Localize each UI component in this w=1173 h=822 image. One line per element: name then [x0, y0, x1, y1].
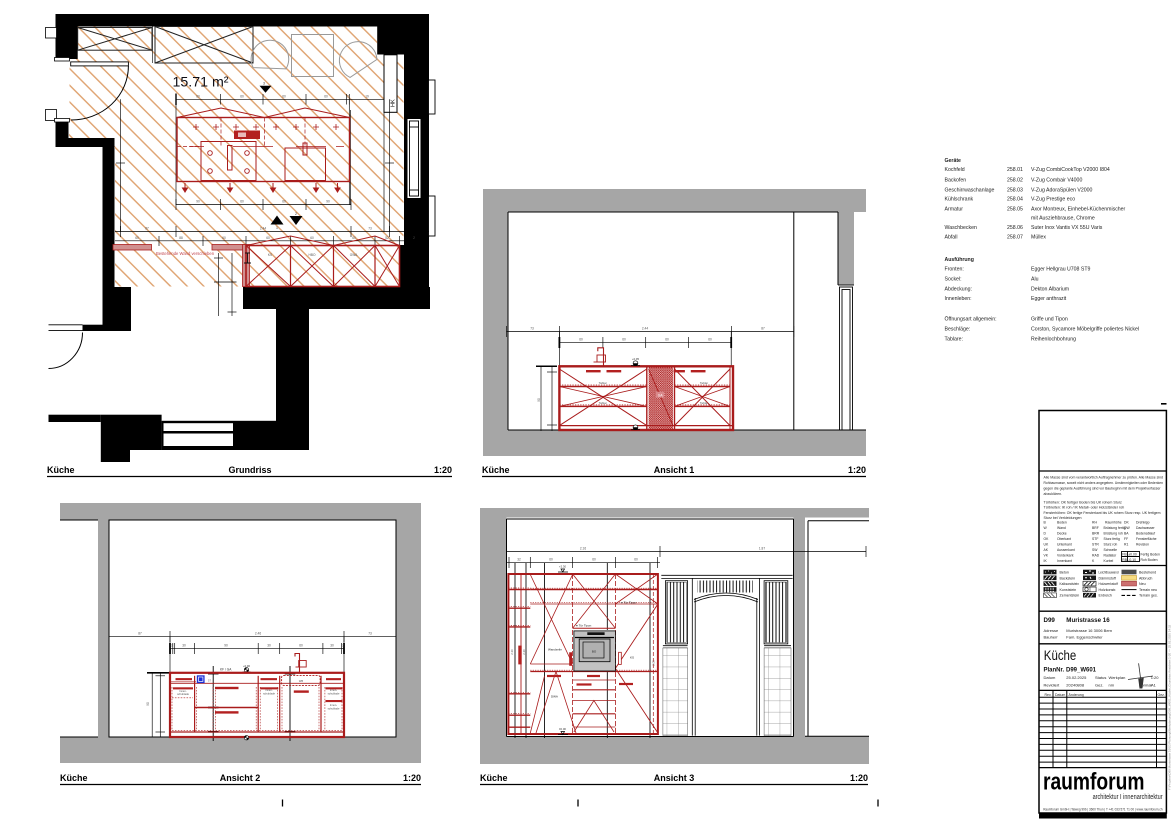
svg-text:1:20: 1:20 — [434, 465, 452, 475]
svg-text:2: 2 — [413, 236, 415, 240]
svg-text:OK: OK — [1044, 537, 1050, 541]
svg-text:Innenleben:: Innenleben: — [945, 296, 972, 302]
svg-text:1.87: 1.87 — [759, 547, 765, 551]
svg-text:RH: RH — [1092, 521, 1097, 525]
svg-text:60: 60 — [592, 558, 596, 562]
svg-text:Alle Masse sind vom verantwort: Alle Masse sind vom verantwortlich Auftr… — [1044, 476, 1164, 480]
svg-text:60: 60 — [282, 95, 286, 99]
svg-text:Muristrasse 16: Muristrasse 16 — [1066, 617, 1110, 624]
svg-text:Gez.: Gez. — [1158, 693, 1165, 697]
svg-text:±0.00: ±0.00 — [1128, 553, 1137, 557]
svg-text:Küche: Küche — [47, 465, 75, 475]
svg-text:Innenkant: Innenkant — [1057, 559, 1072, 563]
svg-text:D99_W601: D99_W601 — [1066, 668, 1097, 674]
svg-text:Fam. Eggenschwiler: Fam. Eggenschwiler — [1066, 635, 1103, 640]
svg-text:Grundriss: Grundriss — [228, 465, 271, 475]
svg-text:V-Zug CombiCookTop V2000 I804: V-Zug CombiCookTop V2000 I804 — [1031, 167, 1110, 173]
svg-text:Ansicht 3: Ansicht 3 — [654, 773, 695, 783]
svg-text:D99: D99 — [1044, 617, 1056, 624]
svg-text:1:20: 1:20 — [403, 773, 421, 783]
svg-text:Tablar: Tablar — [599, 381, 607, 385]
svg-text:Backofen: Backofen — [945, 177, 967, 183]
svg-text:2.16: 2.16 — [580, 547, 586, 551]
svg-text:60: 60 — [324, 95, 328, 99]
svg-text:258.07: 258.07 — [1007, 234, 1023, 240]
svg-text:Küche: Küche — [482, 465, 510, 475]
svg-text:60: 60 — [196, 95, 200, 99]
svg-text:87: 87 — [138, 632, 142, 636]
svg-text:Vorderkant: Vorderkant — [1057, 554, 1073, 558]
svg-text:BA: BA — [1124, 532, 1129, 536]
svg-text:Revidiert: Revidiert — [1044, 682, 1061, 687]
svg-text:Griffe und Tipon: Griffe und Tipon — [1031, 316, 1068, 322]
svg-text:Gez.: Gez. — [1095, 682, 1103, 687]
svg-text:Küche: Küche — [1044, 648, 1077, 664]
svg-text:2: 2 — [171, 643, 173, 647]
svg-text:● Tür Tipon: ● Tür Tipon — [621, 601, 637, 605]
svg-text:GA: GA — [658, 393, 664, 397]
svg-text:Tablar: Tablar — [700, 401, 708, 405]
svg-text:+2.30: +2.30 — [559, 565, 567, 569]
svg-text:Müllex: Müllex — [1031, 234, 1046, 240]
svg-text:Alu: Alu — [1031, 276, 1039, 282]
svg-text:DWA: DWA — [551, 695, 558, 699]
svg-text:88: 88 — [179, 236, 183, 240]
svg-text:V-Zug Combair V4000: V-Zug Combair V4000 — [1031, 177, 1082, 183]
svg-text:Küche: Küche — [60, 773, 88, 783]
svg-text:Tablar: Tablar — [599, 401, 607, 405]
svg-text:schublade: schublade — [328, 706, 340, 710]
svg-text:Rohbaumasse, soweit nicht ande: Rohbaumasse, soweit nicht anders angegeb… — [1044, 481, 1164, 485]
svg-text:Kühlschrank: Kühlschrank — [945, 197, 974, 203]
svg-text:Egger anthrazit: Egger anthrazit — [1031, 296, 1067, 302]
svg-text:HBO: HBO — [309, 253, 316, 257]
svg-text:FF: FF — [1124, 537, 1128, 541]
svg-text:30: 30 — [330, 643, 334, 647]
svg-text:Sockel:: Sockel: — [945, 276, 962, 282]
svg-text:1: 1 — [276, 226, 278, 230]
svg-text:1:20: 1:20 — [848, 465, 866, 475]
svg-text:30: 30 — [267, 643, 271, 647]
svg-text:V-Zug AdoraSpülen V2000: V-Zug AdoraSpülen V2000 — [1031, 187, 1093, 193]
svg-text:Datum: Datum — [1044, 675, 1056, 680]
svg-text:schublade: schublade — [177, 692, 189, 696]
svg-text:Sturz bei Verkleidungen: Sturz bei Verkleidungen — [1044, 516, 1082, 520]
svg-text:2.44: 2.44 — [260, 227, 266, 231]
svg-text:Armatur: Armatur — [945, 207, 964, 213]
svg-text:258.04: 258.04 — [1007, 197, 1023, 203]
svg-text:Egger Hellgrau U708 ST9: Egger Hellgrau U708 ST9 — [1031, 266, 1091, 272]
svg-text:Öffnungsart allgemein:: Öffnungsart allgemein: — [945, 315, 997, 322]
svg-text:1:20: 1:20 — [850, 773, 868, 783]
svg-text:Sturz fertig: Sturz fertig — [1104, 537, 1121, 541]
svg-text:30: 30 — [182, 643, 186, 647]
svg-text:F:\Projekte\D99 Muristrasse 16: F:\Projekte\D99 Muristrasse 16\03 Planun… — [1168, 624, 1172, 790]
svg-text:Fertig Boden: Fertig Boden — [1141, 553, 1161, 557]
svg-text:3: 3 — [263, 82, 265, 86]
svg-text:73: 73 — [368, 632, 372, 636]
svg-text:Bestehend: Bestehend — [1139, 571, 1156, 575]
svg-text:RB: RB — [1122, 558, 1127, 562]
svg-text:60: 60 — [135, 236, 139, 240]
svg-text:DK: DK — [1124, 521, 1129, 525]
svg-text:Geräte: Geräte — [945, 158, 962, 164]
svg-text:2.46: 2.46 — [255, 632, 261, 636]
svg-text:Unterkant: Unterkant — [1057, 543, 1072, 547]
svg-text:258.03: 258.03 — [1007, 187, 1023, 193]
svg-text:Status: Status — [1095, 675, 1106, 680]
svg-text:Kalksandstein: Kalksandstein — [1060, 582, 1080, 586]
svg-text:52: 52 — [385, 236, 389, 240]
svg-text:Muristrasse 16 3006 Bern: Muristrasse 16 3006 Bern — [1066, 628, 1112, 633]
svg-text:90: 90 — [196, 200, 200, 204]
svg-text:Drehkipp: Drehkipp — [1136, 521, 1150, 525]
svg-text:Revision: Revision — [1136, 543, 1149, 547]
svg-text:60: 60 — [665, 337, 669, 341]
svg-text:● Tür Tipon: ● Tür Tipon — [576, 624, 592, 628]
svg-text:Waschbecken: Waschbecken — [945, 225, 978, 231]
svg-text:Raumhöhe: Raumhöhe — [1105, 521, 1122, 525]
svg-text:Sturz roh: Sturz roh — [1104, 543, 1118, 547]
svg-text:60: 60 — [634, 558, 638, 562]
svg-text:Geschirrwaschanlage: Geschirrwaschanlage — [945, 187, 995, 193]
svg-text:AK: AK — [1044, 548, 1049, 552]
svg-text:258.01: 258.01 — [1007, 167, 1023, 173]
svg-text:Ausführung: Ausführung — [945, 257, 974, 263]
svg-text:Beschläge:: Beschläge: — [945, 326, 971, 332]
svg-text:Axor Montreux, Einhebel-Küchen: Axor Montreux, Einhebel-Küchenmischer — [1031, 207, 1126, 213]
svg-text:Zementstein: Zementstein — [1060, 594, 1080, 598]
svg-text:60: 60 — [622, 337, 626, 341]
svg-text:90: 90 — [326, 200, 330, 204]
svg-text:BRR: BRR — [1092, 532, 1100, 536]
svg-text:Decke: Decke — [1057, 532, 1067, 536]
svg-text:Türhöhen: OK fertiger Boden bi: Türhöhen: OK fertiger Boden bis UK rohem… — [1044, 501, 1123, 505]
svg-text:Ansicht 2: Ansicht 2 — [220, 773, 261, 783]
svg-text:Fensterhöhen: OK fertige Fenst: Fensterhöhen: OK fertige Fensterkant bis… — [1044, 511, 1161, 515]
svg-text:STF: STF — [1092, 537, 1098, 541]
svg-text:Bauherr: Bauherr — [1044, 635, 1059, 640]
svg-text:Radiator: Radiator — [1104, 554, 1118, 558]
svg-text:Dämmstoff: Dämmstoff — [1099, 576, 1116, 580]
svg-text:2: 2 — [342, 643, 344, 647]
svg-text:SW: SW — [1092, 548, 1098, 552]
svg-text:WB: WB — [299, 679, 303, 683]
svg-text:BRF: BRF — [1092, 526, 1099, 530]
svg-text:60: 60 — [579, 337, 583, 341]
svg-text:2: 2 — [347, 95, 349, 99]
svg-text:Wand: Wand — [1057, 526, 1066, 530]
svg-text:Kochfeld: Kochfeld — [945, 167, 965, 173]
svg-text:Brüstung fertig: Brüstung fertig — [1104, 526, 1126, 530]
svg-text:Roh Boden: Roh Boden — [1141, 558, 1158, 562]
svg-text:Ansicht 1: Ansicht 1 — [654, 465, 695, 475]
svg-text:60: 60 — [240, 95, 244, 99]
svg-text:32: 32 — [517, 558, 521, 562]
svg-text:mit Ausziehbrause, Chrome: mit Ausziehbrause, Chrome — [1031, 216, 1095, 222]
svg-text:20240808: 20240808 — [1066, 682, 1085, 687]
svg-text:Abdeckung:: Abdeckung: — [945, 286, 972, 292]
svg-text:Bodenablauf: Bodenablauf — [1136, 532, 1155, 536]
svg-text:R1: R1 — [1124, 543, 1128, 547]
svg-text:2.44: 2.44 — [642, 327, 648, 331]
svg-text:Fronten:: Fronten: — [945, 266, 964, 272]
svg-text:60: 60 — [240, 200, 244, 204]
svg-text:87: 87 — [145, 227, 149, 231]
svg-text:60: 60 — [222, 236, 226, 240]
svg-text:Boden: Boden — [1057, 521, 1067, 525]
svg-text:90: 90 — [224, 643, 228, 647]
svg-text:25.02.2025: 25.02.2025 — [1066, 675, 1087, 680]
svg-text:Terrain neu: Terrain neu — [1139, 588, 1157, 592]
svg-text:HK: HK — [391, 99, 397, 107]
svg-text:Suter Inox Vantis VX 55U Varis: Suter Inox Vantis VX 55U Varis — [1031, 225, 1103, 231]
svg-text:2: 2 — [295, 212, 297, 216]
svg-text:Wandzeile: Wandzeile — [548, 648, 562, 652]
svg-text:Schwelle: Schwelle — [1104, 548, 1118, 552]
svg-text:258.06: 258.06 — [1007, 225, 1023, 231]
svg-text:60: 60 — [310, 236, 314, 240]
svg-text:Neu: Neu — [1139, 582, 1146, 586]
svg-text:KS: KS — [630, 656, 634, 660]
svg-text:Holzkonstr.: Holzkonstr. — [1099, 588, 1117, 592]
svg-text:90: 90 — [537, 398, 541, 402]
svg-text:Aussenkant: Aussenkant — [1057, 548, 1075, 552]
svg-text:Holzwerkstoff: Holzwerkstoff — [1099, 582, 1119, 586]
svg-text:60: 60 — [708, 337, 712, 341]
svg-text:Kurbel: Kurbel — [1104, 559, 1114, 563]
svg-text:RAD: RAD — [1092, 554, 1100, 558]
svg-text:Änderung: Änderung — [1069, 693, 1084, 697]
svg-text:2.05: 2.05 — [652, 660, 656, 666]
svg-text:GWA.: GWA. — [350, 253, 358, 257]
svg-text:Erdreich: Erdreich — [1099, 594, 1112, 598]
svg-text:nm: nm — [1109, 682, 1115, 687]
svg-text:Datum: Datum — [1055, 693, 1065, 697]
svg-text:+0.95: +0.95 — [632, 357, 640, 361]
svg-text:15.71 m²: 15.71 m² — [173, 75, 229, 91]
svg-text:Tablar: Tablar — [700, 381, 708, 385]
svg-text:2.30: 2.30 — [522, 649, 526, 655]
svg-text:60: 60 — [549, 558, 553, 562]
svg-text:DW: DW — [1124, 526, 1130, 530]
svg-text:Dekton Albarium: Dekton Albarium — [1031, 286, 1069, 292]
svg-text:Reihenlochbohrung: Reihenlochbohrung — [1031, 336, 1076, 342]
svg-text:Abfall: Abfall — [945, 234, 958, 240]
svg-text:Brüstung roh: Brüstung roh — [1104, 532, 1124, 536]
svg-text:abzuklären.: abzuklären. — [1044, 492, 1063, 496]
svg-text:raumforum: raumforum — [1043, 769, 1145, 796]
svg-text:V-Zug Prestige eco: V-Zug Prestige eco — [1031, 197, 1075, 203]
svg-text:Terrain ges.: Terrain ges. — [1139, 594, 1158, 598]
svg-text:60: 60 — [282, 200, 286, 204]
svg-text:schublade: schublade — [328, 691, 340, 695]
svg-text:+0.90: +0.90 — [243, 664, 251, 668]
svg-text:87: 87 — [761, 327, 765, 331]
svg-text:STR: STR — [1092, 543, 1099, 547]
svg-text:gegen die geplante Ausführung: gegen die geplante Ausführung sind vor B… — [1044, 487, 1162, 491]
svg-text:60: 60 — [266, 236, 270, 240]
svg-text:73: 73 — [368, 227, 372, 231]
svg-text:90: 90 — [146, 702, 150, 706]
svg-text:2.30: 2.30 — [510, 649, 514, 655]
svg-text:Türbreiten: IK roh / IK Metall: Türbreiten: IK roh / IK Metall- oder Hol… — [1044, 506, 1125, 510]
svg-text:Bestehende Wand verschieben: Bestehende Wand verschieben — [156, 251, 215, 256]
svg-text:258.02: 258.02 — [1007, 177, 1023, 183]
svg-text:FB: FB — [1122, 553, 1127, 557]
svg-text:Raumforum GmbH | Talweg 99b |: Raumforum GmbH | Talweg 99b | 3600 Thun … — [1043, 808, 1162, 812]
svg-text:-0.10: -0.10 — [1128, 558, 1136, 562]
svg-text:Rev.: Rev. — [1045, 693, 1052, 697]
svg-text:258.05: 258.05 — [1007, 207, 1023, 213]
svg-text:Leichtbauwand: Leichtbauwand — [1099, 571, 1119, 575]
svg-text:KS: KS — [268, 253, 272, 257]
svg-text:±0.00: ±0.00 — [559, 727, 566, 731]
svg-text:VK: VK — [1044, 554, 1049, 558]
svg-text:A1: A1 — [1151, 682, 1157, 687]
svg-text:Corston, Sycamore Möbelgriffe: Corston, Sycamore Möbelgriffe poliertes … — [1031, 326, 1139, 332]
svg-text:Dachwasser: Dachwasser — [1136, 526, 1156, 530]
svg-text:Adresse: Adresse — [1044, 628, 1059, 633]
svg-text:Oberkant: Oberkant — [1057, 537, 1071, 541]
svg-text:BO: BO — [592, 650, 597, 654]
svg-text:Werkplan: Werkplan — [1109, 675, 1126, 680]
svg-text:73: 73 — [530, 327, 534, 331]
svg-text:60: 60 — [299, 643, 303, 647]
svg-text:Abbruch: Abbruch — [1139, 576, 1152, 580]
svg-text:architektur I innenarchitekt: architektur I innenarchitektur — [1093, 794, 1164, 801]
svg-text:60: 60 — [352, 236, 356, 240]
svg-text:Backstein: Backstein — [1060, 576, 1076, 580]
svg-text:Fensterfläche: Fensterfläche — [1136, 537, 1157, 541]
svg-text:schublade: schublade — [263, 691, 275, 695]
svg-text:Beton: Beton — [1060, 571, 1069, 575]
svg-text:Tablare:: Tablare: — [945, 336, 963, 342]
svg-text:19: 19 — [365, 95, 369, 99]
svg-text:UK: UK — [1044, 543, 1049, 547]
svg-text:PlanNr.: PlanNr. — [1044, 668, 1065, 674]
svg-text:KF / GA: KF / GA — [220, 667, 232, 671]
svg-text:Kunststein: Kunststein — [1060, 588, 1077, 592]
svg-text:Küche: Küche — [480, 773, 508, 783]
